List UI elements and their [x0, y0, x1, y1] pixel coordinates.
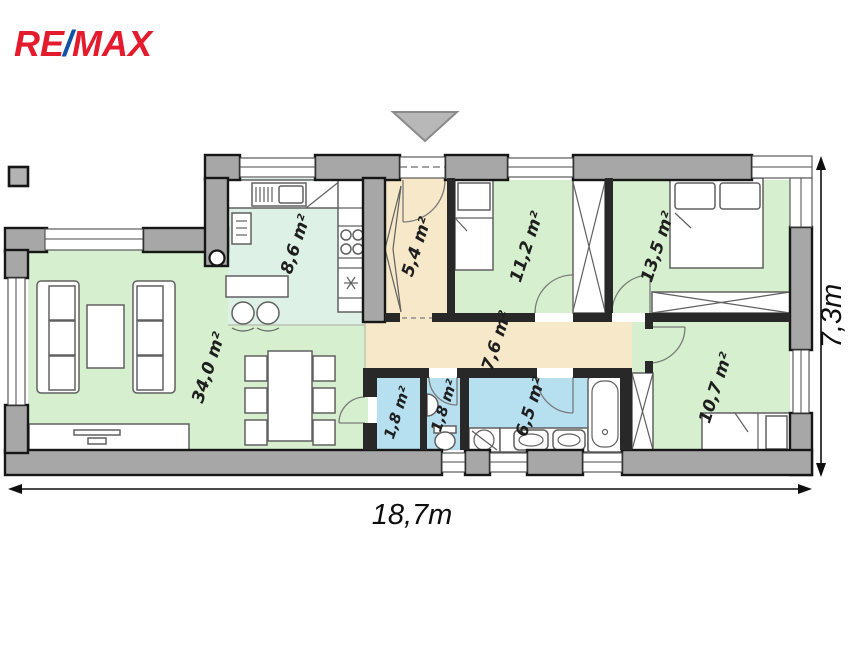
wall-segment — [363, 423, 377, 450]
sofa-cushion — [137, 356, 163, 390]
wall-segment — [650, 313, 790, 322]
pillow — [458, 183, 490, 210]
sofa-cushion — [49, 356, 75, 390]
chair — [313, 420, 335, 445]
wall-segment — [447, 313, 535, 322]
wardrobe — [573, 180, 605, 313]
pillow — [720, 183, 760, 209]
wall-segment — [5, 405, 28, 453]
wall-segment — [620, 368, 632, 450]
toilet — [435, 432, 455, 450]
site-marker — [9, 167, 28, 186]
wall-segment — [527, 450, 583, 475]
wall-segment — [385, 313, 400, 322]
sofa-cushion — [49, 286, 75, 320]
sofa-cushion — [49, 321, 75, 355]
chair — [245, 388, 267, 413]
arrowhead-icon — [816, 463, 826, 477]
chair — [313, 356, 335, 381]
dimension-width: 18,7m — [8, 484, 812, 531]
wall-segment — [645, 361, 653, 373]
dimension-height: 7,3m — [816, 156, 848, 477]
dining-table — [268, 351, 312, 441]
wall-segment — [315, 155, 400, 180]
wall-segment — [573, 313, 612, 322]
breakfast-bar — [226, 276, 288, 297]
chair — [313, 388, 335, 413]
wall-segment — [605, 178, 613, 313]
wall-segment — [790, 227, 812, 350]
wall-segment — [573, 368, 620, 378]
chair — [245, 420, 267, 445]
chair — [245, 356, 267, 381]
wall-segment — [432, 313, 447, 322]
wall-segment — [465, 450, 490, 475]
wall-segment — [205, 155, 240, 180]
entrance-marker-icon — [393, 112, 457, 141]
floor-plan: 34,0 m² 8,6 m² 5,4 m² 11,2 m² 13,5 m² 7,… — [0, 0, 850, 650]
wardrobe — [652, 292, 790, 313]
wall-segment — [645, 313, 653, 329]
wall-segment — [5, 228, 47, 252]
logo-max: MAX — [72, 23, 152, 64]
dimension-width-label: 18,7m — [372, 499, 453, 531]
pillow — [766, 416, 787, 449]
wall-segment — [445, 155, 508, 180]
arrowhead-icon — [798, 484, 812, 494]
wall-segment — [420, 378, 427, 450]
wall-segment — [460, 378, 469, 450]
wall-segment — [5, 250, 28, 278]
dimension-height-label: 7,3m — [816, 284, 848, 348]
wall-segment — [573, 155, 752, 180]
wall-segment — [5, 450, 442, 475]
wall-segment — [622, 450, 812, 475]
bar-stool — [257, 302, 279, 324]
sink-bowl — [279, 186, 303, 203]
wardrobe — [632, 373, 653, 450]
pillow — [675, 183, 715, 209]
sofa-cushion — [137, 286, 163, 320]
arrowhead-icon — [816, 156, 826, 170]
flue — [210, 251, 225, 266]
tv-stand — [88, 438, 106, 444]
remax-logo: RE/MAX — [14, 26, 152, 62]
bar-stool — [232, 302, 254, 324]
arrowhead-icon — [8, 484, 22, 494]
tv-bench — [29, 424, 189, 452]
tv-icon — [74, 430, 120, 435]
logo-re: RE — [14, 23, 64, 64]
floor-plan-page: RE/MAX — [0, 0, 850, 650]
coffee-table — [87, 305, 124, 368]
sofa-cushion — [137, 321, 163, 355]
wall-segment — [363, 368, 377, 397]
wall-segment — [447, 178, 455, 313]
wall-segment — [363, 178, 385, 322]
